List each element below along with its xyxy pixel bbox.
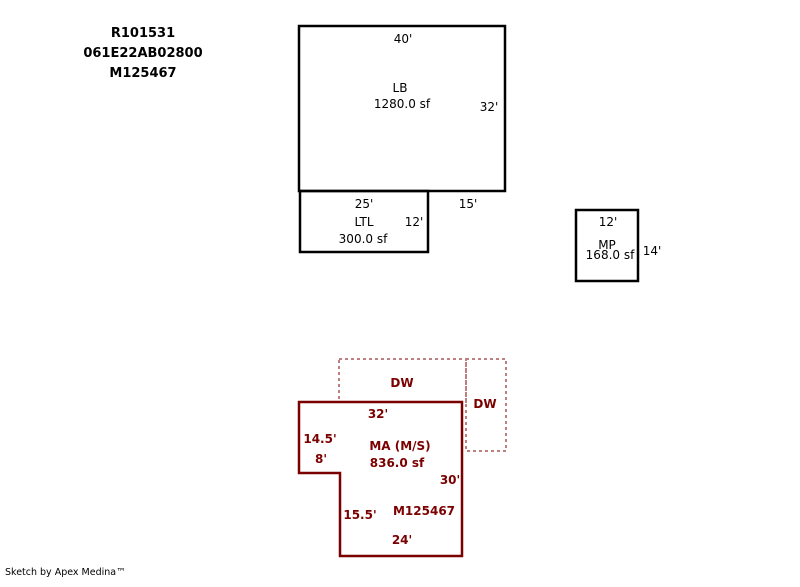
parcel-id-line1: R101531	[83, 24, 202, 44]
parcel-id-block: R101531 061E22AB02800 M125467	[83, 24, 202, 84]
lb-area: 1280.0 sf	[374, 98, 430, 110]
mp-dim-right: 14'	[643, 245, 662, 257]
lb-dim-right: 32'	[480, 101, 499, 113]
ltl-dim-top: 25'	[355, 198, 374, 210]
ma-outline	[299, 402, 462, 556]
ma-dim-notch: 8'	[315, 453, 327, 465]
ltl-code: LTL	[354, 216, 373, 228]
ma-area: 836.0 sf	[370, 457, 425, 469]
dw-right-code: DW	[473, 398, 496, 410]
ma-ref-label: M125467	[393, 505, 455, 517]
ma-dim-bottom: 24'	[392, 534, 412, 546]
ma-code: MA (M/S)	[369, 440, 430, 452]
lb-dim-top: 40'	[394, 33, 413, 45]
lb-code: LB	[393, 82, 408, 94]
ma-dim-top: 32'	[368, 408, 388, 420]
parcel-id-line3: M125467	[83, 64, 202, 84]
mp-dim-top: 12'	[599, 216, 618, 228]
ma-dim-right: 30'	[440, 474, 460, 486]
mp-area: 168.0 sf	[586, 249, 635, 261]
dw-upper-code: DW	[390, 377, 413, 389]
lb-dim-bottom-right: 15'	[459, 198, 478, 210]
parcel-id-line2: 061E22AB02800	[83, 44, 202, 64]
ma-dim-left-lower: 15.5'	[343, 509, 376, 521]
ltl-dim-right: 12'	[405, 216, 424, 228]
sketch-credit: Sketch by Apex Medina™	[5, 567, 126, 578]
ma-dim-left-upper: 14.5'	[303, 433, 336, 445]
sketch-canvas: R101531 061E22AB02800 M125467 40' LB 128…	[0, 0, 800, 587]
ltl-area: 300.0 sf	[339, 233, 388, 245]
